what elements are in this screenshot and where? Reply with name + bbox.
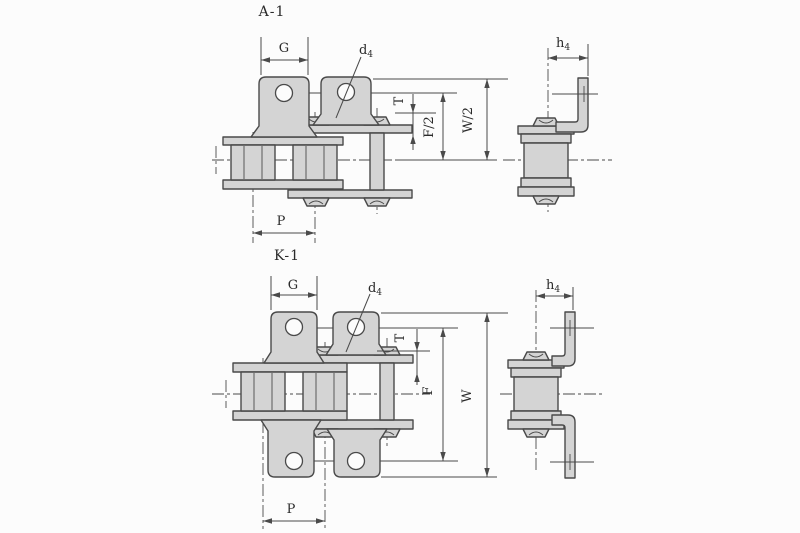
k1-top-bent-lug (552, 312, 575, 366)
a1-dim-w2-label: W/2 (461, 107, 476, 133)
a1-dim-h4: h4 (548, 36, 588, 76)
a1-dim-g: G (261, 37, 308, 75)
a1-bent-lug (556, 78, 588, 132)
k1-front-view: G d4 T F (212, 276, 508, 529)
k1-dim-g-label: G (288, 278, 298, 293)
k1-dim-p-label: P (287, 502, 296, 517)
a1-dim-f2-label: F/2 (422, 116, 437, 138)
k1-dim-t-label: T (393, 333, 408, 342)
a1-dim-p: P (253, 214, 315, 236)
k1-dim-p: P (263, 502, 325, 524)
a1-dim-p-label: P (277, 214, 286, 229)
a1-bottom-link-plate (223, 180, 343, 189)
a1-plate-1-hole (276, 85, 293, 102)
k1-roller-1 (241, 372, 285, 411)
k1-dim-h4-label: h4 (546, 278, 560, 295)
figure-k1-title: K-1 (274, 248, 300, 264)
k1-side-roller (514, 377, 558, 411)
a1-lug-hole-centerline (552, 86, 598, 102)
k1-lower-plate-2-hole (348, 453, 365, 470)
figure-k1: K-1 (212, 248, 604, 529)
a1-side-pin-head (533, 118, 559, 126)
k1-dims-right: T F W (377, 313, 508, 477)
k1-side-view: h4 (500, 278, 604, 478)
k1-dim-h4: h4 (536, 278, 573, 310)
chain-attachment-drawing: A-1 (0, 0, 800, 533)
a1-chain-link (223, 117, 412, 206)
drawing-canvas: A-1 (0, 0, 800, 533)
a1-side-roller (524, 143, 568, 178)
a1-side-pin-head (533, 196, 559, 204)
k1-side-pin-head (523, 429, 549, 437)
figure-a1-title: A-1 (258, 4, 286, 20)
k1-side-pin-head (523, 352, 549, 360)
k1-dim-f-label: F (421, 386, 436, 395)
k1-dim-d4-label: d4 (368, 281, 382, 298)
a1-dim-t-label: T (392, 96, 407, 105)
a1-pin-head (303, 198, 329, 206)
a1-lower-offset-plate (288, 190, 412, 198)
a1-front-view: G d4 T F/2 (212, 37, 508, 243)
a1-roller-2 (293, 145, 337, 180)
a1-plate-2-hole (338, 84, 355, 101)
k1-dim-g: G (271, 276, 317, 310)
k1-roller-2 (303, 372, 347, 411)
k1-dim-w-label: W (460, 389, 475, 403)
k1-pin (380, 363, 394, 420)
k1-top-link-plate (233, 363, 347, 372)
a1-dim-d4-label: d4 (359, 43, 373, 60)
k1-upper-plate-1-hole (286, 319, 303, 336)
a1-top-link-plate (223, 137, 343, 145)
k1-bottom-bent-lug (552, 415, 575, 478)
a1-dims-right: T F/2 W/2 (373, 79, 508, 160)
a1-dim-h4-label: h4 (556, 36, 570, 53)
k1-bottom-link-plate (233, 411, 347, 420)
a1-pin (370, 133, 384, 190)
a1-roller-1 (231, 145, 275, 180)
k1-lower-plate-1-hole (286, 453, 303, 470)
a1-side-view: h4 (503, 36, 612, 212)
a1-dim-g-label: G (279, 41, 289, 56)
a1-pin-head (364, 198, 390, 206)
figure-a1: A-1 (212, 4, 612, 243)
